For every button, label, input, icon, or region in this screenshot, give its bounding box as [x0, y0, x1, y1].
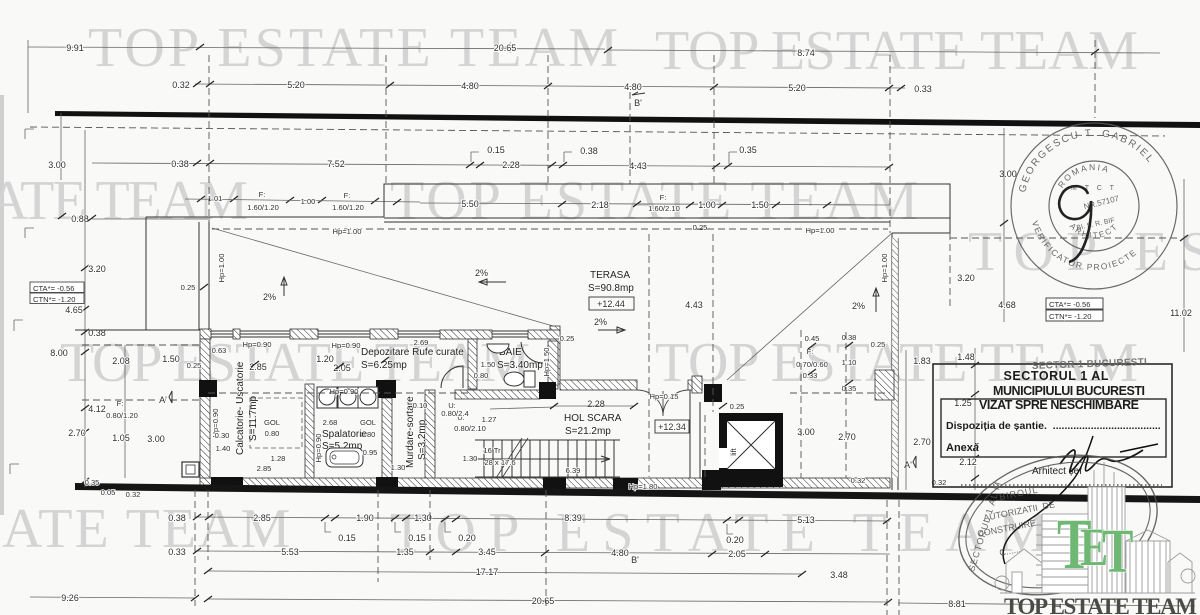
- svg-text:+12.34: +12.34: [658, 422, 686, 432]
- svg-text:Hp=0.90: Hp=0.90: [243, 340, 272, 349]
- svg-text:ATE TEAM: ATE TEAM: [2, 498, 292, 560]
- svg-text:1.50: 1.50: [481, 360, 496, 369]
- svg-text:lift: lift: [729, 447, 738, 455]
- svg-text:20.65: 20.65: [494, 43, 517, 53]
- svg-text:2.18: 2.18: [591, 200, 609, 210]
- svg-text:CTA*= -0.56: CTA*= -0.56: [1049, 300, 1090, 309]
- svg-text:5.20: 5.20: [287, 80, 305, 90]
- svg-text:2.28: 2.28: [587, 399, 605, 409]
- svg-text:0.25: 0.25: [730, 402, 745, 411]
- svg-text:Hp=1.50: Hp=1.50: [542, 348, 551, 377]
- svg-text:0.15: 0.15: [487, 145, 505, 155]
- svg-text:0.25: 0.25: [187, 361, 202, 370]
- svg-text:GOL: GOL: [360, 418, 376, 427]
- svg-text:VIZAT SPRE NESCHIMBARE: VIZAT SPRE NESCHIMBARE: [979, 398, 1139, 412]
- svg-text:2.08: 2.08: [112, 356, 130, 366]
- svg-text:0.35: 0.35: [85, 478, 100, 487]
- svg-text:1.30: 1.30: [391, 463, 406, 472]
- svg-text:17.17: 17.17: [476, 567, 499, 577]
- svg-text:2.70: 2.70: [68, 428, 86, 438]
- svg-text:0.38: 0.38: [842, 333, 857, 342]
- svg-text:0.33: 0.33: [168, 547, 186, 557]
- svg-text:1.00: 1.00: [301, 197, 316, 206]
- svg-text:8.74: 8.74: [797, 48, 815, 58]
- svg-text:0.63: 0.63: [212, 346, 227, 355]
- svg-text:TERASA: TERASA: [590, 270, 630, 281]
- svg-text:2.85: 2.85: [253, 513, 271, 523]
- svg-text:1.27: 1.27: [482, 415, 497, 424]
- svg-text:1.01: 1.01: [208, 194, 223, 203]
- svg-text:5.20: 5.20: [788, 83, 806, 93]
- svg-text:0.15: 0.15: [338, 533, 356, 543]
- svg-text:S=21.2mp: S=21.2mp: [565, 426, 611, 437]
- svg-text:Calcatorie- Uscatorie: Calcatorie- Uscatorie: [235, 361, 246, 455]
- svg-text:Dispoziția de șantie. .......: Dispoziția de șantie. ..................…: [946, 420, 1161, 432]
- svg-text:TOP ESTATE TEAM: TOP ESTATE TEAM: [60, 332, 532, 394]
- svg-text:S=11.7mp: S=11.7mp: [248, 395, 259, 441]
- svg-text:B': B': [631, 555, 639, 565]
- svg-text:0.10: 0.10: [413, 401, 428, 410]
- svg-text:2.70: 2.70: [913, 437, 931, 447]
- svg-text:0.80/2.10: 0.80/2.10: [454, 424, 486, 433]
- svg-text:3.00: 3.00: [797, 427, 815, 437]
- svg-text:2%: 2%: [475, 268, 488, 278]
- svg-text:0.45: 0.45: [805, 334, 820, 343]
- svg-text:A': A': [904, 460, 912, 470]
- svg-text:0.33: 0.33: [803, 371, 818, 380]
- svg-text:1.60/1.20: 1.60/1.20: [332, 203, 364, 212]
- svg-text:7.52: 7.52: [327, 159, 345, 169]
- svg-text:Hp=1.00: Hp=1.00: [333, 227, 362, 236]
- svg-text:HOL SCARA: HOL SCARA: [564, 413, 622, 424]
- svg-text:Hp=1.00: Hp=1.00: [880, 254, 889, 283]
- svg-text:1.60/2.10: 1.60/2.10: [648, 204, 680, 213]
- svg-text:Hp=0.90: Hp=0.90: [314, 434, 323, 463]
- svg-text:3.00: 3.00: [999, 169, 1017, 179]
- svg-text:3.45: 3.45: [478, 547, 496, 557]
- svg-text:2.69: 2.69: [414, 338, 429, 347]
- svg-text:28 x 17.6: 28 x 17.6: [484, 458, 515, 467]
- svg-text:0.35: 0.35: [739, 145, 757, 155]
- svg-text:1.05: 1.05: [112, 433, 130, 443]
- svg-text:0.32: 0.32: [932, 478, 947, 487]
- svg-text:0.88: 0.88: [71, 214, 89, 224]
- svg-text:0.80/2.4: 0.80/2.4: [441, 409, 468, 418]
- svg-text:0.32: 0.32: [851, 476, 866, 485]
- svg-text:0.32: 0.32: [172, 80, 190, 90]
- svg-text:4.43: 4.43: [685, 300, 703, 310]
- svg-text:3.20: 3.20: [88, 264, 106, 274]
- svg-text:4.65: 4.65: [65, 305, 83, 315]
- svg-text:F:: F:: [807, 347, 814, 356]
- svg-text:Hp=1.00: Hp=1.00: [806, 226, 835, 235]
- svg-text:0.30: 0.30: [215, 431, 230, 440]
- svg-text:A': A': [159, 395, 167, 405]
- svg-text:4.80: 4.80: [461, 81, 479, 91]
- svg-text:Anexă: Anexă: [946, 442, 979, 454]
- svg-text:2.12: 2.12: [959, 457, 977, 467]
- svg-text:0.38: 0.38: [168, 513, 186, 523]
- svg-text:4.68: 4.68: [998, 300, 1016, 310]
- svg-text:2%: 2%: [263, 292, 276, 302]
- svg-text:8.39: 8.39: [564, 513, 582, 523]
- svg-text:Spalatorie: Spalatorie: [322, 429, 367, 440]
- svg-text:4.80: 4.80: [624, 82, 642, 92]
- svg-text:1.90: 1.90: [356, 513, 374, 523]
- svg-text:2%: 2%: [594, 317, 607, 327]
- svg-text:Hp=1.80: Hp=1.80: [629, 482, 658, 491]
- svg-text:1.50: 1.50: [751, 200, 769, 210]
- svg-text:S=90.8mp: S=90.8mp: [588, 283, 634, 294]
- svg-text:9.26: 9.26: [61, 593, 79, 603]
- svg-text:1.40: 1.40: [216, 444, 231, 453]
- svg-text:CTN*= -1.20: CTN*= -1.20: [33, 295, 75, 304]
- svg-text:0.35: 0.35: [842, 384, 857, 393]
- svg-text:CTN*= -1.20: CTN*= -1.20: [1049, 312, 1091, 321]
- svg-text:2.68: 2.68: [323, 418, 338, 427]
- svg-text:0.25: 0.25: [560, 334, 575, 343]
- svg-text:S=3.2mp: S=3.2mp: [417, 419, 428, 460]
- svg-text:1.30: 1.30: [414, 513, 432, 523]
- svg-text:2.70: 2.70: [838, 432, 856, 442]
- svg-text:1.60/1.20: 1.60/1.20: [247, 203, 279, 212]
- svg-text:GOL: GOL: [264, 418, 280, 427]
- svg-text:0.20: 0.20: [726, 535, 744, 545]
- svg-text:20.65: 20.65: [532, 596, 555, 606]
- svg-text:4.43: 4.43: [629, 161, 647, 171]
- svg-text:2.28: 2.28: [502, 160, 520, 170]
- svg-text:0.38: 0.38: [580, 146, 598, 156]
- svg-text:0.33: 0.33: [914, 84, 932, 94]
- svg-text:Hp=1.00: Hp=1.00: [217, 254, 226, 283]
- svg-text:TOP ESTATE TEAM: TOP ESTATE TEAM: [1004, 594, 1198, 615]
- svg-text:0.32: 0.32: [126, 490, 141, 499]
- svg-text:2%: 2%: [852, 301, 865, 311]
- svg-text:T: T: [1102, 517, 1133, 586]
- svg-text:B': B': [634, 98, 642, 108]
- svg-text:Hp=0.90: Hp=0.90: [330, 387, 359, 396]
- svg-text:S=6.25mp: S=6.25mp: [361, 360, 407, 371]
- svg-text:Hp=0.90: Hp=0.90: [332, 341, 361, 350]
- svg-text:1.28: 1.28: [271, 454, 286, 463]
- svg-text:0.20: 0.20: [458, 533, 476, 543]
- svg-text:0.25: 0.25: [693, 223, 708, 232]
- svg-text:0.80: 0.80: [474, 371, 489, 380]
- svg-text:1.35: 1.35: [396, 547, 414, 557]
- svg-text:SECTORUL 1 AL: SECTORUL 1 AL: [1004, 369, 1109, 383]
- svg-text:0.80: 0.80: [265, 429, 280, 438]
- svg-text:0.80/1.20: 0.80/1.20: [106, 411, 138, 420]
- svg-text:5.50: 5.50: [461, 199, 479, 209]
- svg-text:1.10: 1.10: [842, 358, 857, 367]
- svg-text:2.05: 2.05: [728, 549, 746, 559]
- svg-text:0.25: 0.25: [181, 283, 196, 292]
- svg-text:16 Tr: 16 Tr: [483, 446, 501, 455]
- svg-text:+12.44: +12.44: [597, 299, 625, 309]
- svg-text:3.00: 3.00: [48, 160, 66, 170]
- svg-text:1.20: 1.20: [316, 354, 334, 364]
- svg-text:3.48: 3.48: [830, 570, 848, 580]
- svg-text:5.53: 5.53: [281, 547, 299, 557]
- svg-text:MUNICIPIULUI BUCURESTI: MUNICIPIULUI BUCURESTI: [993, 384, 1145, 398]
- svg-text:1.30: 1.30: [463, 454, 478, 463]
- svg-text:F:: F:: [660, 193, 667, 202]
- svg-text:8.00: 8.00: [50, 348, 68, 358]
- svg-text:9.91: 9.91: [66, 43, 84, 53]
- svg-text:2.85: 2.85: [257, 464, 272, 473]
- svg-text:Hp=0.15: Hp=0.15: [650, 392, 679, 401]
- svg-text:5.13: 5.13: [797, 515, 815, 525]
- svg-text:0.38: 0.38: [171, 159, 189, 169]
- svg-text:11.02: 11.02: [1170, 308, 1192, 318]
- svg-text:6.39: 6.39: [566, 466, 581, 475]
- svg-text:4.80: 4.80: [611, 548, 629, 558]
- svg-text:Depozitare Rufe curate: Depozitare Rufe curate: [361, 347, 464, 358]
- svg-text:4.12: 4.12: [88, 404, 106, 414]
- svg-text:1.48: 1.48: [957, 352, 975, 362]
- svg-text:CTA*= -0.56: CTA*= -0.56: [33, 284, 74, 293]
- svg-text:8.81: 8.81: [948, 599, 966, 609]
- svg-text:3.20: 3.20: [957, 273, 975, 283]
- svg-text:0.95: 0.95: [363, 448, 378, 457]
- svg-text:1.00: 1.00: [698, 200, 716, 210]
- svg-text:0.25: 0.25: [871, 340, 886, 349]
- svg-text:F:: F:: [344, 191, 351, 200]
- svg-text:F:: F:: [259, 190, 266, 199]
- svg-text:3.00: 3.00: [147, 434, 165, 444]
- svg-text:0.15: 0.15: [408, 533, 426, 543]
- svg-text:0.05: 0.05: [101, 488, 116, 497]
- svg-text:1.83: 1.83: [913, 356, 931, 366]
- svg-text:1.50: 1.50: [162, 354, 180, 364]
